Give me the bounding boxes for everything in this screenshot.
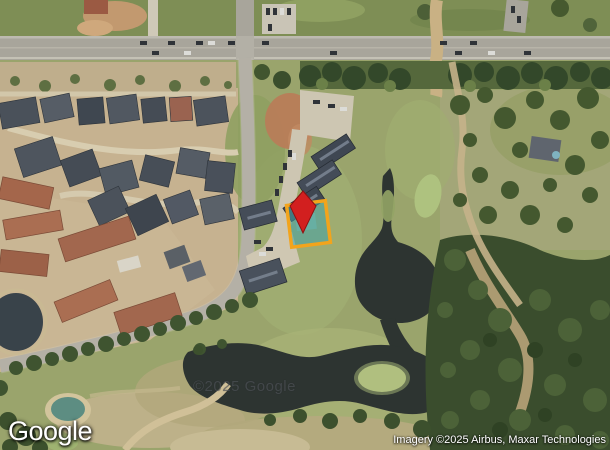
imagery-attribution: Imagery ©2025 Airbus, Maxar Technologies bbox=[393, 434, 606, 446]
map-watermark: ©2025 Google bbox=[193, 378, 296, 395]
marker-overlay bbox=[0, 0, 610, 450]
google-logo[interactable]: Google bbox=[8, 416, 92, 447]
map-canvas[interactable]: ©2025 Google Google Imagery ©2025 Airbus… bbox=[0, 0, 610, 450]
